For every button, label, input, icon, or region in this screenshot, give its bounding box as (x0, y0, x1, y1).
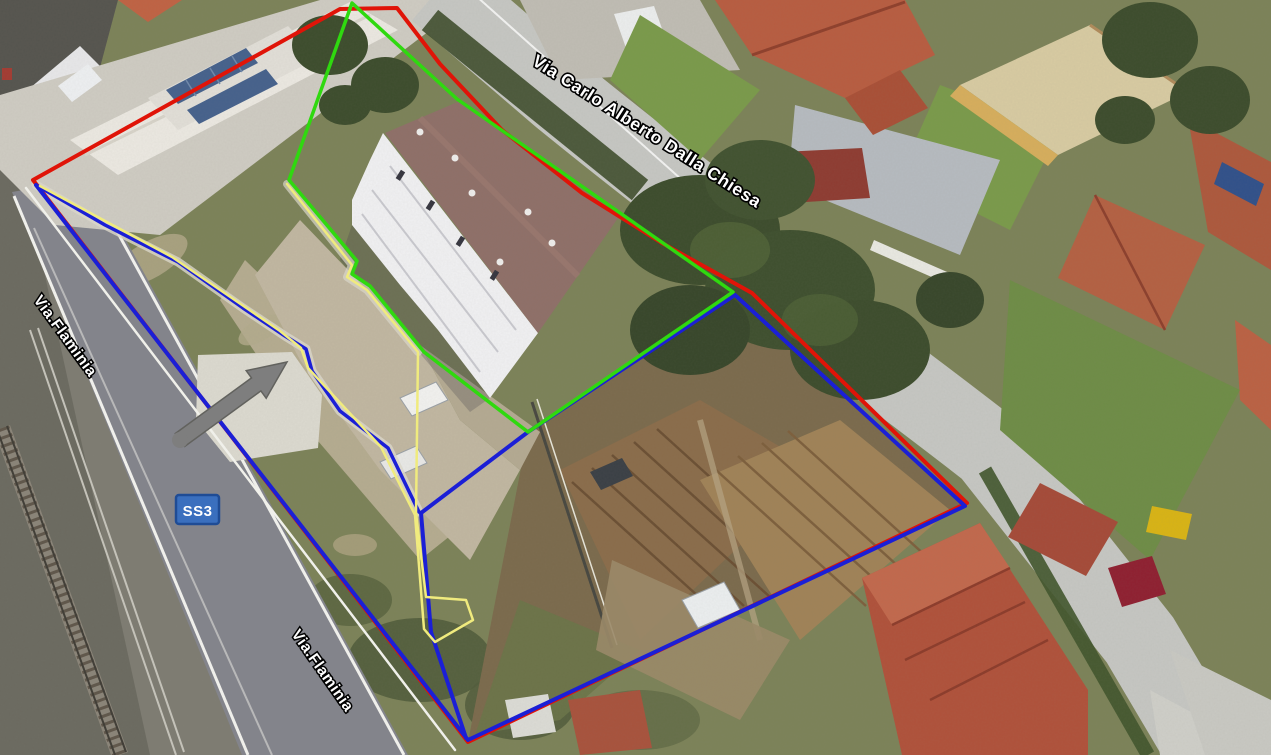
route-badge-label: SS3 (183, 503, 213, 520)
route-badge: SS3 (176, 495, 219, 524)
arrow-tail (172, 432, 188, 448)
aerial-map-canvas: Via Carlo Alberto Dalla Chiesa Via.Flami… (0, 0, 1271, 755)
